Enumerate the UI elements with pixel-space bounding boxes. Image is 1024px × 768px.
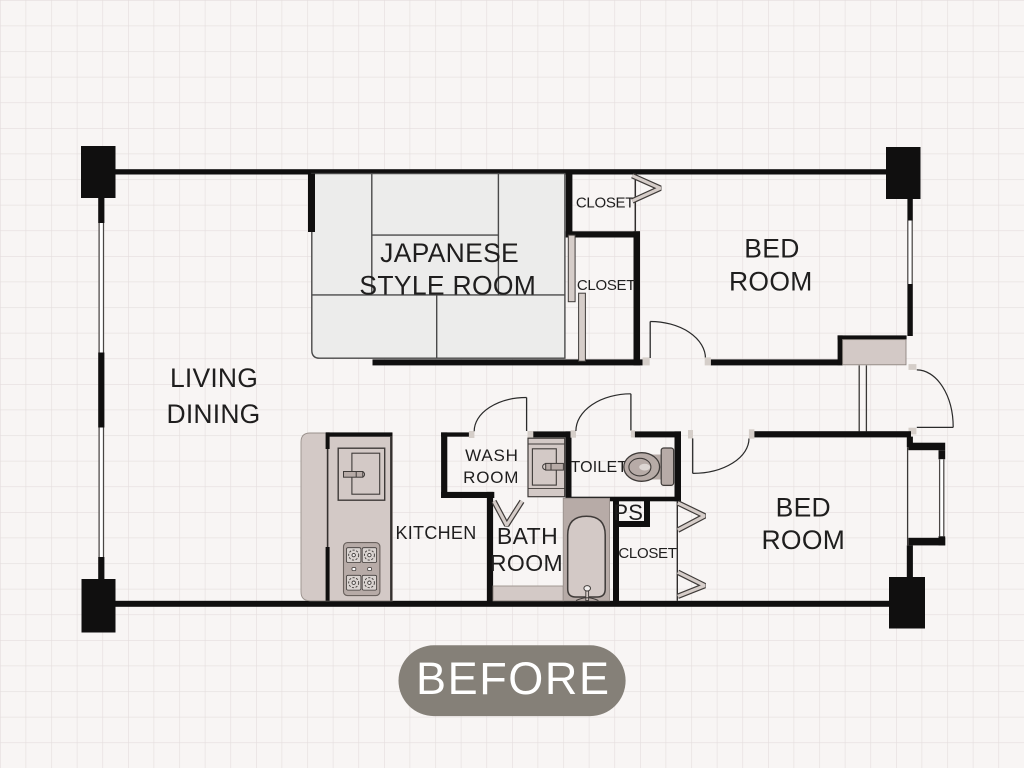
svg-text:ROOM: ROOM [761,525,845,555]
svg-text:KITCHEN: KITCHEN [395,523,476,543]
svg-text:ROOM: ROOM [463,468,519,487]
svg-text:BEFORE: BEFORE [416,653,611,704]
svg-text:ROOM: ROOM [490,550,563,576]
svg-text:BATH: BATH [497,523,558,549]
svg-text:WASH: WASH [465,446,519,465]
svg-text:STYLE ROOM: STYLE ROOM [359,270,536,300]
svg-text:LIVING: LIVING [170,363,258,393]
svg-text:ROOM: ROOM [729,266,813,296]
svg-text:CLOSET: CLOSET [618,545,676,562]
svg-text:DINING: DINING [167,399,261,429]
svg-text:JAPANESE: JAPANESE [380,238,519,268]
svg-text:TOILET: TOILET [570,459,627,476]
svg-text:CLOSET: CLOSET [577,277,635,294]
svg-text:PS: PS [613,500,643,525]
svg-text:BED: BED [744,233,799,263]
svg-text:BED: BED [776,492,831,522]
svg-text:CLOSET: CLOSET [576,195,634,212]
